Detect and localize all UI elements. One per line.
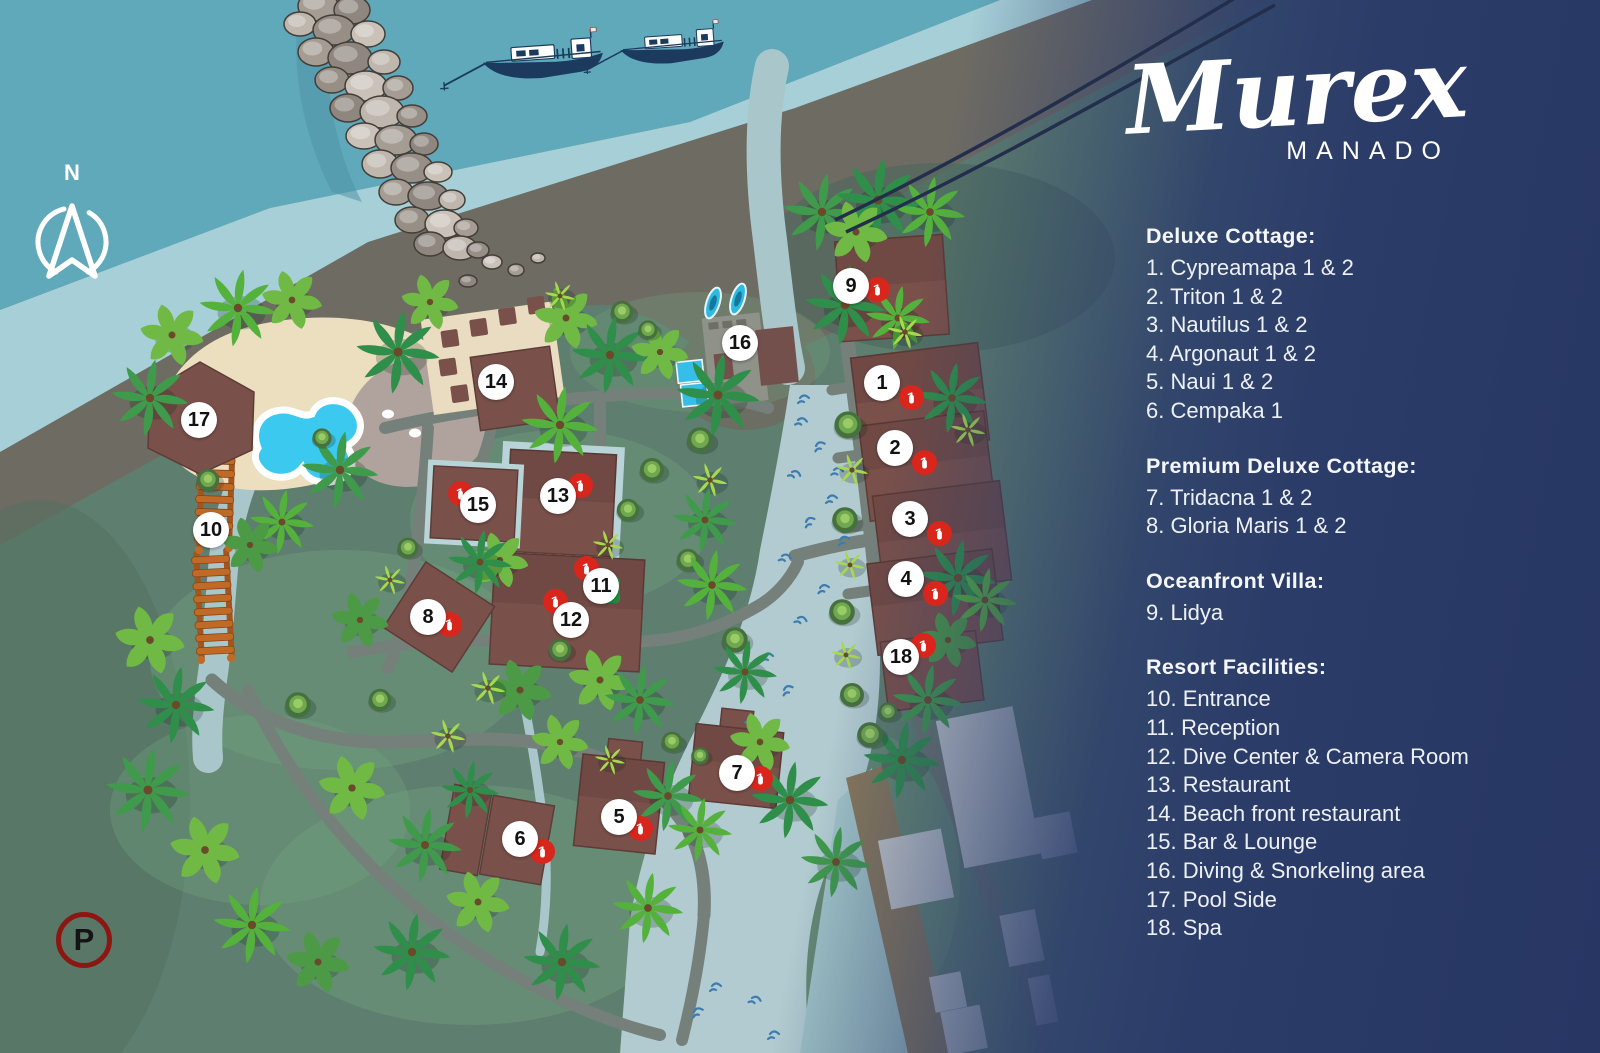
map-marker-14[interactable]: 14 [478,364,514,400]
legend-item: 3. Nautilus 1 & 2 [1146,311,1586,340]
map-marker-15[interactable]: 15 [460,487,496,523]
legend-item: 1. Cypreamapa 1 & 2 [1146,254,1586,283]
legend-section-oceanfront-villa: Oceanfront Villa: 9. Lidya [1146,569,1586,628]
legend-item: 11. Reception [1146,714,1586,743]
legend-item: 7. Tridacna 1 & 2 [1146,484,1586,513]
fire-extinguisher-icon [927,521,952,546]
map-marker-11[interactable]: 11 [583,568,619,604]
legend-item: 6. Cempaka 1 [1146,397,1586,426]
parking-label: P [74,922,95,958]
map-marker-3[interactable]: 3 [892,501,928,537]
legend-section-title: Deluxe Cottage: [1146,224,1586,249]
legend-section-deluxe-cottage: Deluxe Cottage: 1. Cypreamapa 1 & 2 2. T… [1146,224,1586,426]
map-marker-10[interactable]: 10 [193,512,229,548]
map-marker-9[interactable]: 9 [833,268,869,304]
map-legend: Deluxe Cottage: 1. Cypreamapa 1 & 2 2. T… [1146,224,1586,971]
map-marker-8[interactable]: 8 [410,599,446,635]
map-marker-1[interactable]: 1 [864,365,900,401]
map-marker-5[interactable]: 5 [601,799,637,835]
compass-north-label: N [22,162,122,184]
legend-item: 5. Naui 1 & 2 [1146,368,1586,397]
fire-extinguisher-icon [899,385,924,410]
legend-item: 14. Beach front restaurant [1146,800,1586,829]
legend-item: 2. Triton 1 & 2 [1146,283,1586,312]
fire-extinguisher-icon [923,581,948,606]
parking-icon: P [56,912,112,968]
map-marker-6[interactable]: 6 [502,821,538,857]
legend-item: 15. Bar & Lounge [1146,828,1586,857]
legend-item: 17. Pool Side [1146,886,1586,915]
fire-extinguisher-icon [912,450,937,475]
legend-section-title: Resort Facilities: [1146,655,1586,680]
fire-extinguisher-icon [865,277,890,302]
legend-section-title: Premium Deluxe Cottage: [1146,454,1586,479]
brand-logo: Murex MANADO [1126,38,1462,166]
brand-name: Murex [1123,29,1464,156]
resort-map-page: N P 1 2 3 4 5 6 7 8 9 10 11 12 13 14 15 … [0,0,1600,1053]
legend-item: 13. Restaurant [1146,771,1586,800]
legend-item: 4. Argonaut 1 & 2 [1146,340,1586,369]
map-marker-2[interactable]: 2 [877,430,913,466]
map-marker-13[interactable]: 13 [540,478,576,514]
legend-item: 8. Gloria Maris 1 & 2 [1146,512,1586,541]
legend-item: 9. Lidya [1146,599,1586,628]
legend-section-title: Oceanfront Villa: [1146,569,1586,594]
legend-item: 12. Dive Center & Camera Room [1146,743,1586,772]
legend-item: 18. Spa [1146,914,1586,943]
map-marker-12[interactable]: 12 [553,602,589,638]
compass-icon: N [22,162,122,291]
map-marker-17[interactable]: 17 [181,402,217,438]
map-marker-4[interactable]: 4 [888,561,924,597]
map-marker-16[interactable]: 16 [722,325,758,361]
map-marker-18[interactable]: 18 [883,639,919,675]
map-marker-7[interactable]: 7 [719,755,755,791]
legend-item: 16. Diving & Snorkeling area [1146,857,1586,886]
legend-section-resort-facilities: Resort Facilities: 10. Entrance 11. Rece… [1146,655,1586,942]
legend-section-premium-deluxe: Premium Deluxe Cottage: 7. Tridacna 1 & … [1146,454,1586,541]
legend-item: 10. Entrance [1146,685,1586,714]
